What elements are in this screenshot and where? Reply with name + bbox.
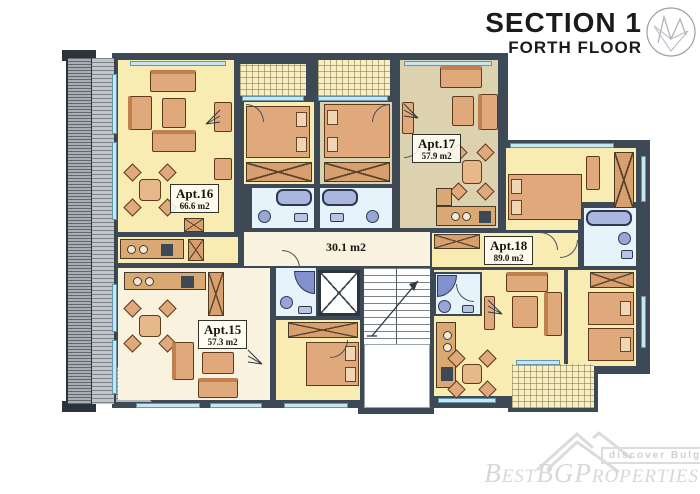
developer-logo-icon <box>645 6 697 58</box>
sink-icon <box>621 250 633 259</box>
kitchen-counter-icon <box>436 206 496 226</box>
coffee-table-icon <box>512 296 538 328</box>
corridor-area-label: 30.1 m2 <box>306 240 386 255</box>
kitchen-counter-icon <box>436 188 452 206</box>
toilet-icon <box>438 300 451 313</box>
window <box>641 156 646 202</box>
bed-icon <box>508 174 582 220</box>
plan-title: SECTION 1 <box>485 8 642 38</box>
window <box>284 403 348 408</box>
wardrobe-icon <box>434 234 480 249</box>
sofa-icon <box>506 272 548 292</box>
kitchen-counter-icon <box>120 239 184 259</box>
apt15-area: 57.3 m2 <box>204 337 241 347</box>
window <box>242 96 304 101</box>
toilet-icon <box>258 210 271 223</box>
wardrobe-icon <box>324 162 390 182</box>
armchair-icon <box>128 96 152 130</box>
stairs-direction-arrow-icon <box>364 268 430 344</box>
window <box>112 340 117 394</box>
wardrobe-icon <box>184 218 204 232</box>
apt16-balcony <box>240 64 306 96</box>
stairwell-void <box>364 344 430 408</box>
armchair-icon <box>478 94 498 130</box>
window <box>318 96 388 101</box>
sofa-icon <box>198 378 238 398</box>
coffee-table-icon <box>202 352 234 374</box>
dining-table-icon <box>128 304 172 348</box>
apt17-area: 57.9 m2 <box>418 151 455 161</box>
apt18-area: 89.0 m2 <box>490 253 527 263</box>
sofa-icon <box>152 130 196 152</box>
apt18-label: Apt.18 89.0 m2 <box>484 236 533 265</box>
dresser-icon <box>586 156 600 190</box>
plan-header: SECTION 1 FORTH FLOOR <box>485 8 642 57</box>
wardrobe-icon <box>590 272 634 288</box>
dining-table-icon <box>128 168 172 212</box>
sofa-icon <box>440 66 482 88</box>
sink-icon <box>330 213 344 222</box>
single-bed-icon <box>588 328 634 361</box>
entry-door-fan-icon <box>246 348 264 366</box>
plan-subtitle: FORTH FLOOR <box>485 38 642 57</box>
apt16-name: Apt.16 <box>176 186 213 201</box>
terrace <box>66 58 92 404</box>
toilet-icon <box>280 296 293 309</box>
window <box>112 142 117 220</box>
wardrobe-icon <box>246 162 312 182</box>
window <box>516 360 560 365</box>
apt17-label: Apt.17 57.9 m2 <box>412 134 461 163</box>
dining-table-icon <box>452 354 492 394</box>
coffee-table-icon <box>452 96 474 126</box>
single-bed-icon <box>588 292 634 325</box>
window <box>641 296 646 348</box>
sink-icon <box>462 305 474 313</box>
wardrobe-icon <box>614 152 634 208</box>
armchair-icon <box>172 342 194 380</box>
floor-plan-page: Apt.16 66.6 m2 Apt.17 57.9 m2 Apt.18 89.… <box>0 0 700 494</box>
sofa-icon <box>150 70 196 92</box>
bathtub-icon <box>276 189 312 206</box>
entry-door-fan-icon <box>204 108 222 126</box>
coffee-table-icon <box>162 98 186 128</box>
side-table-icon <box>214 158 232 180</box>
apt17-balcony <box>318 60 390 96</box>
wardrobe-icon <box>208 272 224 316</box>
window <box>112 284 117 332</box>
watermark-brand: BestBGProperties <box>484 458 699 489</box>
window <box>130 61 226 66</box>
apt17-name: Apt.17 <box>418 136 455 151</box>
window <box>210 403 262 408</box>
fridge-icon <box>188 239 204 261</box>
toilet-icon <box>618 232 631 245</box>
bathtub-icon <box>586 210 632 226</box>
apt15-label: Apt.15 57.3 m2 <box>198 320 247 349</box>
elevator-icon <box>318 270 360 316</box>
window <box>510 143 614 148</box>
bathtub-icon <box>322 189 358 206</box>
sink-icon <box>294 213 308 222</box>
wardrobe-icon <box>288 322 358 338</box>
sink-icon <box>298 306 312 314</box>
apt15-name: Apt.15 <box>204 322 241 337</box>
window <box>112 74 117 134</box>
apt16-area: 66.6 m2 <box>176 201 213 211</box>
apt16-label: Apt.16 66.6 m2 <box>170 184 219 213</box>
sofa-icon <box>544 292 562 336</box>
kitchen-counter-icon <box>124 272 206 290</box>
entry-door-fan-icon <box>486 298 504 316</box>
window <box>136 403 200 408</box>
apt18-balcony <box>512 364 594 408</box>
toilet-icon <box>366 210 379 223</box>
entry-door-fan-icon <box>402 102 420 120</box>
apt18-name: Apt.18 <box>490 238 527 253</box>
